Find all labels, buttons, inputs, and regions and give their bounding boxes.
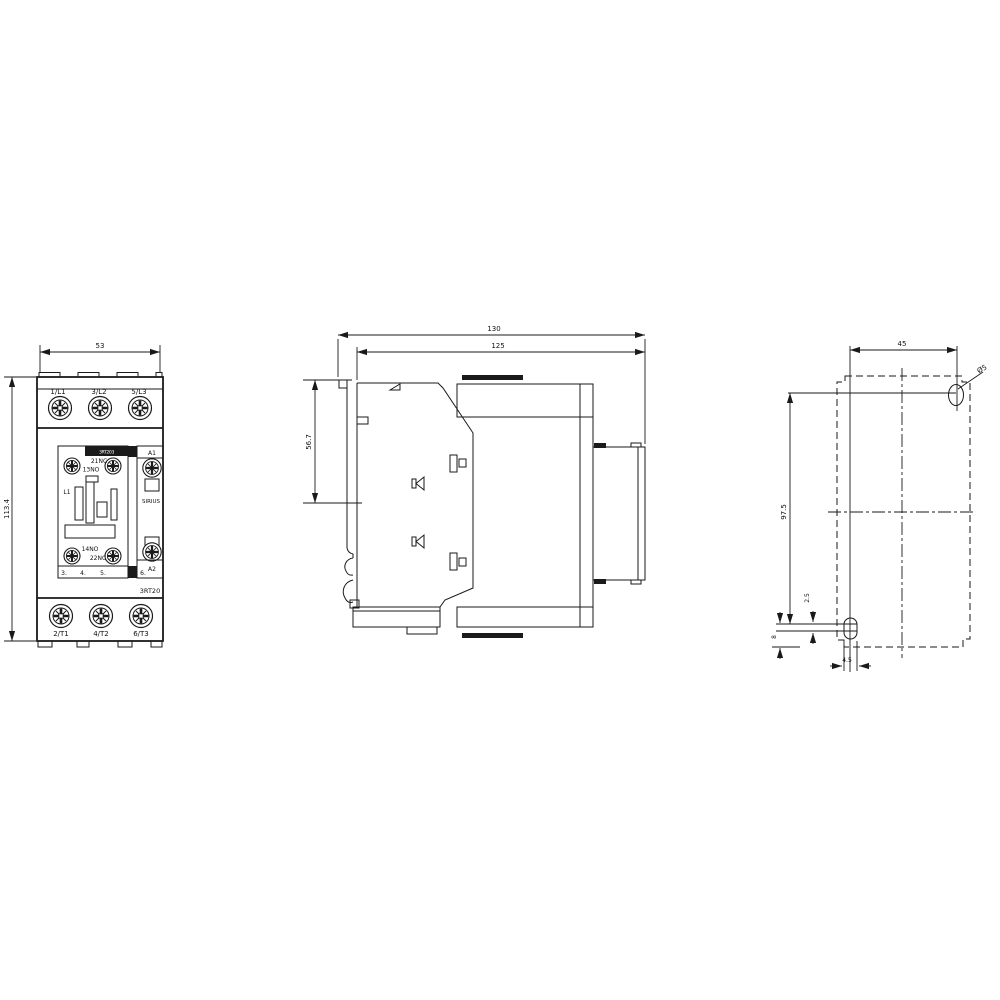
terminal-label-4t2: 4/T2 [93, 630, 109, 638]
terminal-screw [89, 397, 112, 420]
brand-label: SIRIUS [142, 499, 161, 505]
drawing-canvas: 53 113.4 1/L1 3/ [0, 0, 1000, 1000]
drill-slot-offset-dimension: 2.5 [804, 593, 813, 644]
side-body-outline [357, 383, 473, 607]
drill-slot-width-label: 4.5 [842, 657, 852, 664]
terminal-label-1l1: 1/L1 [50, 388, 65, 396]
front-width-dimension: 53 [40, 342, 160, 372]
terminal-screw [130, 605, 153, 628]
terminal-screw [50, 605, 73, 628]
type-band-label: 3RT203 [99, 450, 114, 456]
front-height-dim-label: 113.4 [3, 498, 11, 519]
drill-outline [837, 376, 970, 647]
terminal-label-2t1: 2/T1 [53, 630, 69, 638]
terminal-screw [90, 605, 113, 628]
row-number: 4. [80, 570, 86, 577]
mounting-hole-top [949, 385, 964, 406]
front-aux-module: 3RT203 21NC 13NO L1 14NO 22NC 3. 4. 5. [58, 446, 128, 578]
aux-screw [64, 548, 80, 564]
aux-label-14no: 14NO [82, 546, 99, 553]
drill-v-dim-label: 97.5 [780, 504, 788, 520]
drill-plan: Ø5 45 97.5 8 2.5 [771, 340, 988, 672]
aux-label-22nc: 22NC [90, 555, 106, 562]
side-din-flange [339, 380, 368, 608]
mounting-slot-bottom [844, 618, 857, 639]
drill-h-dim-label: 45 [898, 340, 907, 348]
aux-label-21nc: 21NC [91, 458, 107, 465]
front-upper-terminals: 1/L1 3/L2 5/L3 [49, 388, 152, 420]
terminal-label-6t3: 6/T3 [133, 630, 149, 638]
aux-screw [64, 458, 80, 474]
phase-label-l1: L1 [63, 489, 70, 496]
technical-drawing: 53 113.4 1/L1 3/ [0, 0, 1000, 1000]
front-height-dimension: 113.4 [3, 377, 36, 641]
terminal-screw [49, 397, 72, 420]
hole-diameter-label: Ø5 [976, 363, 989, 375]
row-number: 5. [100, 570, 106, 577]
terminal-screw [129, 397, 152, 420]
terminal-label-5l3: 5/L3 [131, 388, 146, 396]
drill-bottom-offset-label: 8 [771, 635, 778, 639]
side-overall-dim-label: 130 [487, 325, 500, 333]
drill-slot-offset-label: 2.5 [804, 593, 811, 603]
side-view: 130 125 56.7 [303, 325, 645, 638]
drill-v-dimension: 97.5 [780, 393, 790, 624]
drill-slot-width-dimension: 4.5 [830, 657, 871, 666]
terminal-label-3l2: 3/L2 [91, 388, 106, 396]
coil-screw [143, 543, 161, 561]
row-number: 6. [140, 570, 146, 577]
drill-bottom-offset-dimension: 8 [771, 612, 780, 659]
row-number: 3. [61, 570, 67, 577]
aux-label-13no: 13NO [83, 467, 100, 474]
side-depth-dimension: 56.7 [303, 380, 362, 503]
side-bottom-plate [353, 607, 593, 638]
coil-screw [143, 459, 161, 477]
coil-label-a2: A2 [148, 566, 156, 573]
drill-h-dimension: 45 [850, 340, 957, 350]
side-top-plate [457, 375, 593, 417]
aux-screw [105, 548, 121, 564]
side-depth-dim-label: 56.7 [305, 434, 313, 450]
front-view: 53 113.4 1/L1 3/ [3, 342, 163, 647]
side-right-housing [580, 384, 645, 627]
side-body-dim-label: 125 [491, 342, 504, 350]
aux-screw [105, 458, 121, 474]
front-width-dim-label: 53 [96, 342, 105, 350]
type-code-label: 3RT20 [140, 587, 160, 595]
front-lower-terminals: 2/T1 4/T2 6/T3 [50, 605, 153, 639]
side-body-dimension: 125 [357, 342, 645, 380]
coil-label-a1: A1 [148, 450, 156, 457]
